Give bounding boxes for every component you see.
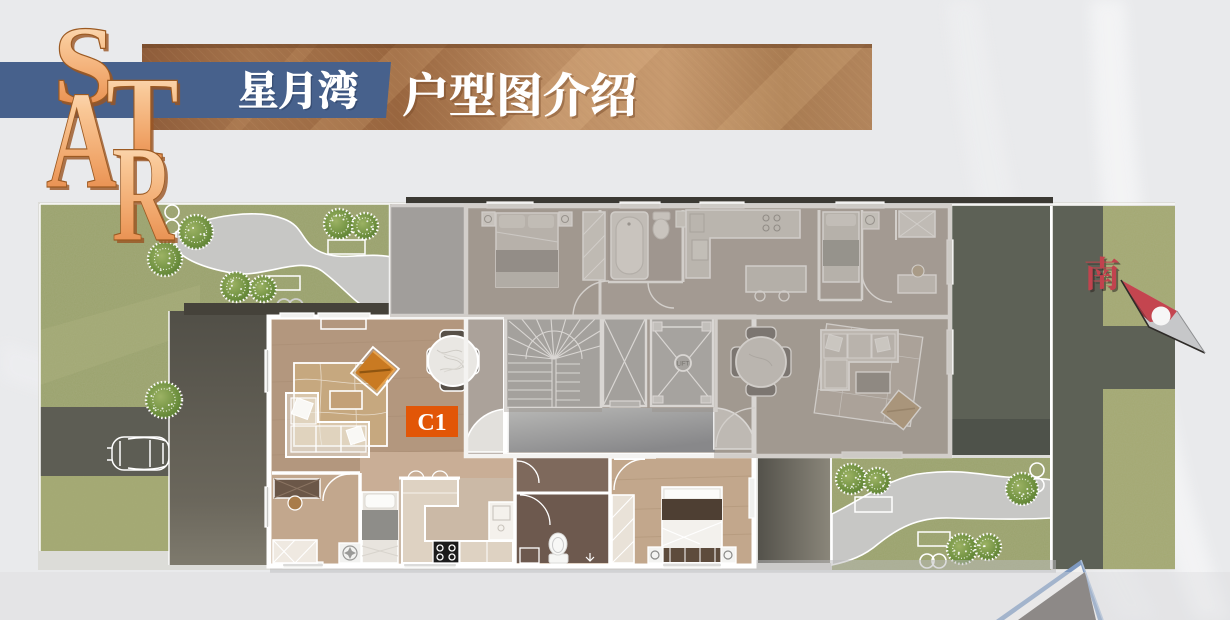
svg-text:C1: C1 <box>417 410 446 436</box>
svg-text:R: R <box>112 117 175 270</box>
svg-text:A: A <box>46 63 117 218</box>
